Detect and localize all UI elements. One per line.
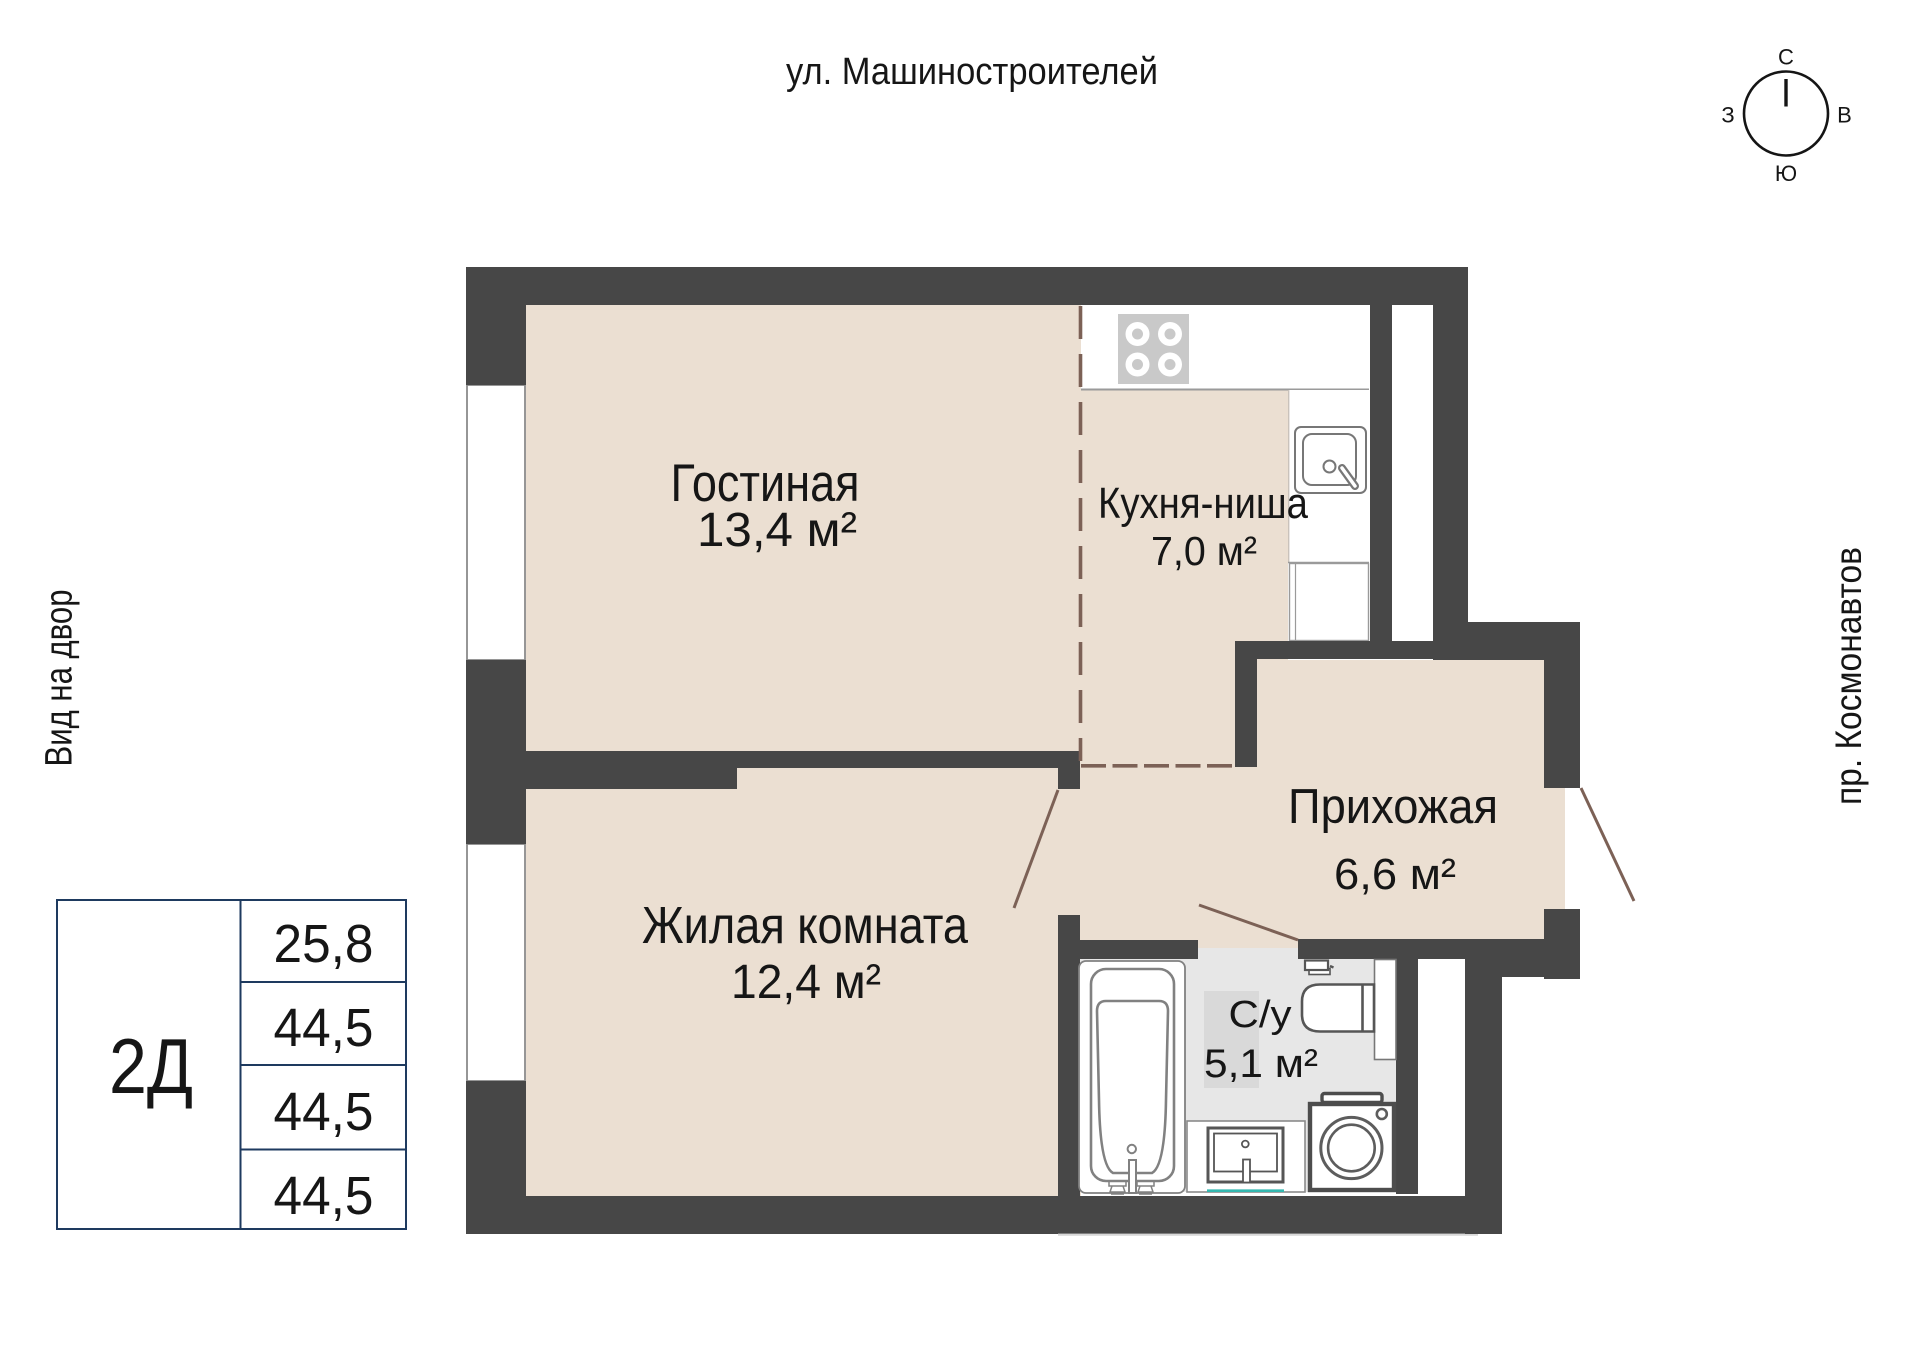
svg-text:ул. Машиностроителей: ул. Машиностроителей [786, 51, 1158, 93]
svg-text:С/у: С/у [1229, 994, 1292, 1036]
svg-text:6,6 м²: 6,6 м² [1334, 850, 1456, 899]
svg-text:С: С [1778, 45, 1794, 70]
svg-text:44,5: 44,5 [274, 998, 374, 1058]
svg-text:7,0 м²: 7,0 м² [1151, 528, 1257, 574]
svg-text:Кухня-ниша: Кухня-ниша [1098, 479, 1308, 528]
svg-text:пр. Космонавтов: пр. Космонавтов [1828, 547, 1869, 805]
svg-text:44,5: 44,5 [274, 1082, 374, 1142]
svg-text:Жилая комната: Жилая комната [642, 897, 968, 955]
svg-text:13,4 м²: 13,4 м² [697, 504, 857, 557]
svg-text:В: В [1837, 103, 1852, 128]
svg-text:44,5: 44,5 [274, 1166, 374, 1226]
svg-text:12,4 м²: 12,4 м² [731, 956, 881, 1009]
svg-text:5,1 м²: 5,1 м² [1204, 1042, 1318, 1086]
svg-text:Прихожая: Прихожая [1288, 780, 1498, 834]
svg-text:2Д: 2Д [109, 1022, 193, 1110]
svg-text:25,8: 25,8 [274, 914, 374, 974]
svg-text:Вид на двор: Вид на двор [39, 590, 81, 767]
svg-text:Ю: Ю [1775, 161, 1797, 186]
svg-text:З: З [1721, 103, 1734, 128]
